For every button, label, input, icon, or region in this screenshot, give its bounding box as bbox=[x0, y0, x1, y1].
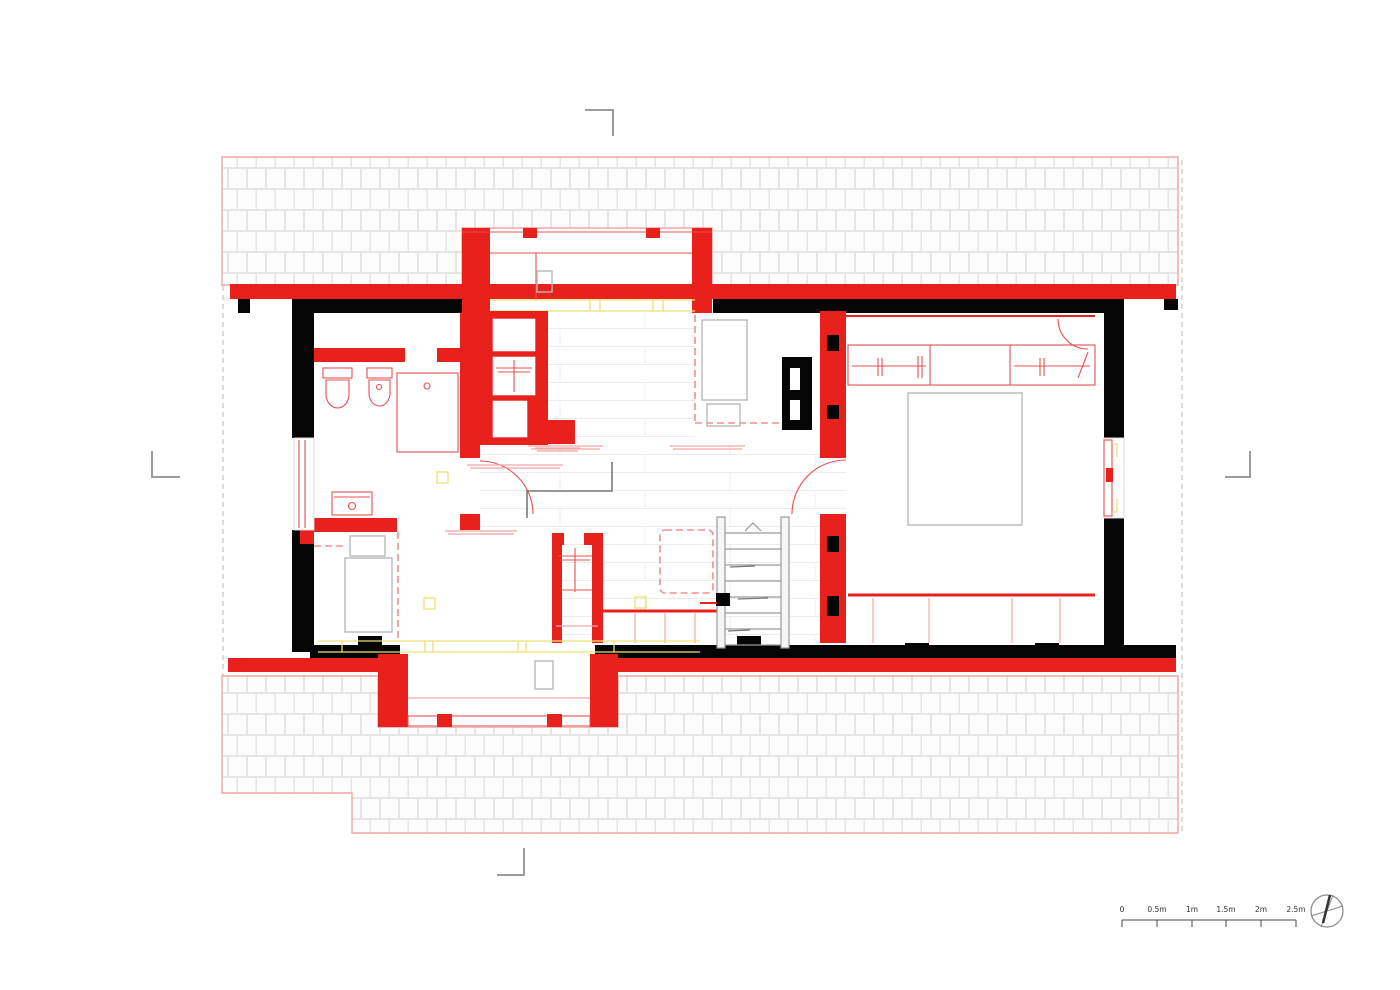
scale-label: 1m bbox=[1186, 905, 1198, 914]
bathroom-shelf-wall bbox=[314, 348, 405, 362]
floor-plan-canvas: 0 0.5m 1m 1.5m 2m 2.5m bbox=[0, 0, 1400, 990]
dormer-top-wall-left bbox=[462, 228, 490, 313]
scale-label: 2m bbox=[1255, 905, 1267, 914]
wall-right-black-upper bbox=[1104, 299, 1124, 438]
scale-bar: 0 0.5m 1m 1.5m 2m 2.5m bbox=[1120, 905, 1306, 927]
wall-left-black-lower bbox=[292, 530, 314, 652]
wardrobe-master bbox=[848, 345, 1095, 385]
toilet bbox=[323, 368, 352, 408]
dormer-top-window-mullion bbox=[523, 228, 537, 238]
bed-master bbox=[908, 393, 1022, 525]
scale-label: 0 bbox=[1120, 905, 1125, 914]
crop-mark-left bbox=[152, 451, 180, 477]
wall-left-black-upper bbox=[292, 299, 314, 438]
wall-top-black-right bbox=[713, 299, 1124, 313]
window-left bbox=[294, 438, 314, 530]
north-arrow-compass-icon bbox=[1311, 895, 1343, 927]
dormer-top bbox=[462, 228, 712, 313]
crop-mark-bottom bbox=[497, 848, 524, 875]
bidet bbox=[367, 368, 392, 406]
wall-right-black-lower bbox=[1104, 518, 1124, 652]
chimney-block bbox=[782, 357, 812, 430]
dormer-bottom bbox=[378, 654, 618, 727]
dormer-bottom-wall-right bbox=[590, 654, 618, 727]
dormer-bottom-window-mullion bbox=[437, 714, 452, 727]
bench-master bbox=[848, 595, 1095, 643]
scale-label: 0.5m bbox=[1147, 905, 1166, 914]
bathroom-wall-right bbox=[460, 313, 480, 458]
window-right bbox=[1104, 438, 1124, 518]
bench-corridor bbox=[603, 611, 718, 643]
shower bbox=[397, 373, 458, 452]
bedroom-niche bbox=[695, 313, 820, 445]
crop-mark-right bbox=[1225, 451, 1250, 477]
roof-hatch-bottom bbox=[222, 676, 1178, 833]
scale-label: 1.5m bbox=[1216, 905, 1235, 914]
dormer-top-window-mullion bbox=[646, 228, 660, 238]
ceiling-light-symbol bbox=[437, 472, 448, 483]
wall-top-black-left bbox=[294, 299, 487, 313]
dormer-bottom-window-mullion bbox=[547, 714, 562, 727]
stair-newel-post bbox=[716, 593, 730, 606]
crop-mark-top bbox=[585, 110, 613, 136]
dormer-bottom-wall-left bbox=[378, 654, 408, 727]
dormer-top-sill-yellow bbox=[490, 300, 695, 311]
bathroom-wall-bottom bbox=[302, 518, 397, 532]
washbasin bbox=[332, 492, 372, 515]
scale-label: 2.5m bbox=[1286, 905, 1305, 914]
floor-plan-drawing: 0 0.5m 1m 1.5m 2m 2.5m bbox=[0, 0, 1400, 990]
wall-bottom-red-right bbox=[590, 658, 1176, 672]
